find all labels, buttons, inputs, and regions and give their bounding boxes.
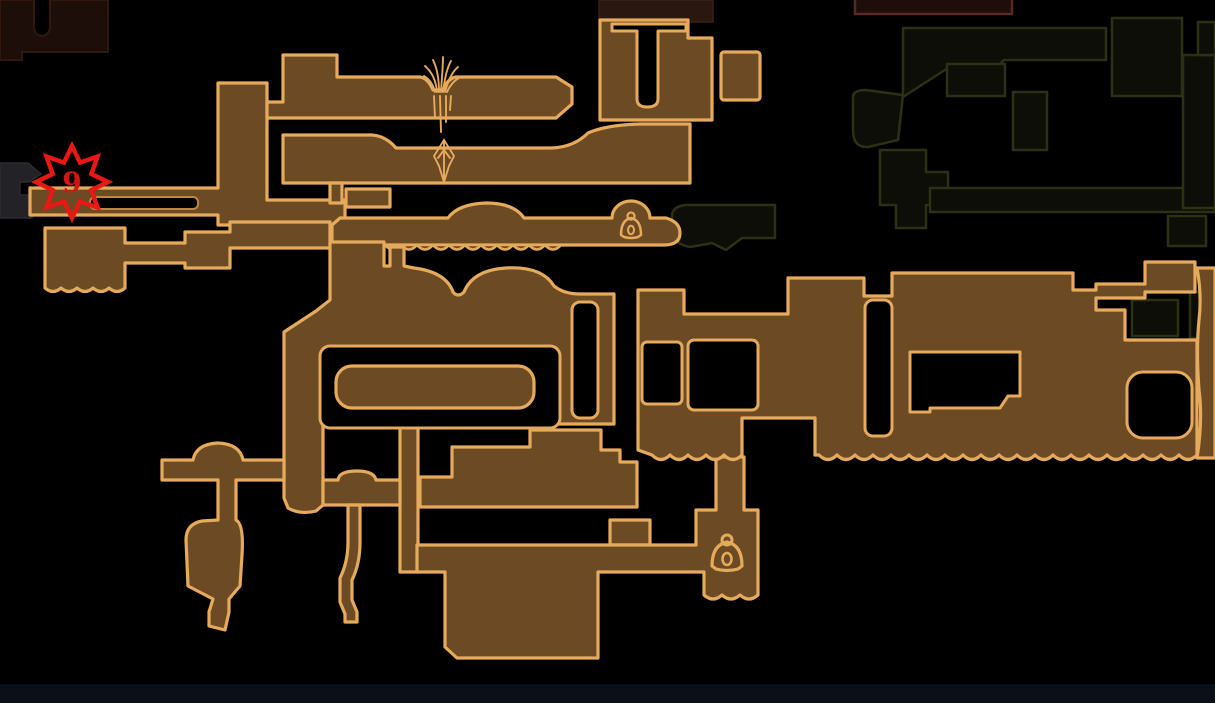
map-room-right-edge <box>1197 268 1215 458</box>
corridor-slot <box>90 197 198 209</box>
map-room-small-top-right <box>721 52 760 100</box>
central-slot <box>572 302 598 418</box>
right-void-c <box>910 352 1020 412</box>
top-left-maroon-zone <box>0 0 108 60</box>
island-platform-room <box>336 366 534 408</box>
map-room-floating-cell <box>346 189 390 207</box>
game-map[interactable]: 9 <box>0 0 1215 703</box>
scalloped-underside <box>385 245 561 250</box>
top-right-maroon-strip <box>855 0 1012 14</box>
bottom-edge-strip <box>0 684 1215 703</box>
right-void-rounded <box>1127 372 1192 438</box>
link-block <box>610 520 650 545</box>
pin-number: 9 <box>62 166 81 199</box>
right-void-b <box>688 340 758 410</box>
right-void-a <box>642 342 682 404</box>
right-slot <box>865 300 892 436</box>
map-canvas: 9 <box>0 0 1215 703</box>
connector-shaft <box>330 183 342 203</box>
